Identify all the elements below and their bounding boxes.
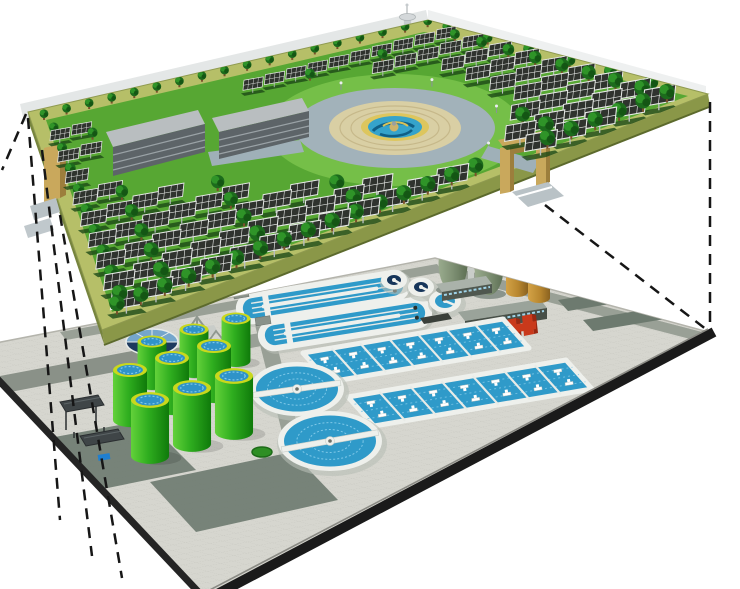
projection-line-left-1	[2, 114, 26, 170]
illustration-stage	[0, 0, 740, 589]
storage-tank	[506, 265, 528, 297]
fountain	[361, 113, 429, 141]
ground-marker	[252, 447, 272, 457]
illustration-canvas	[0, 0, 740, 589]
storage-tank	[528, 271, 550, 303]
